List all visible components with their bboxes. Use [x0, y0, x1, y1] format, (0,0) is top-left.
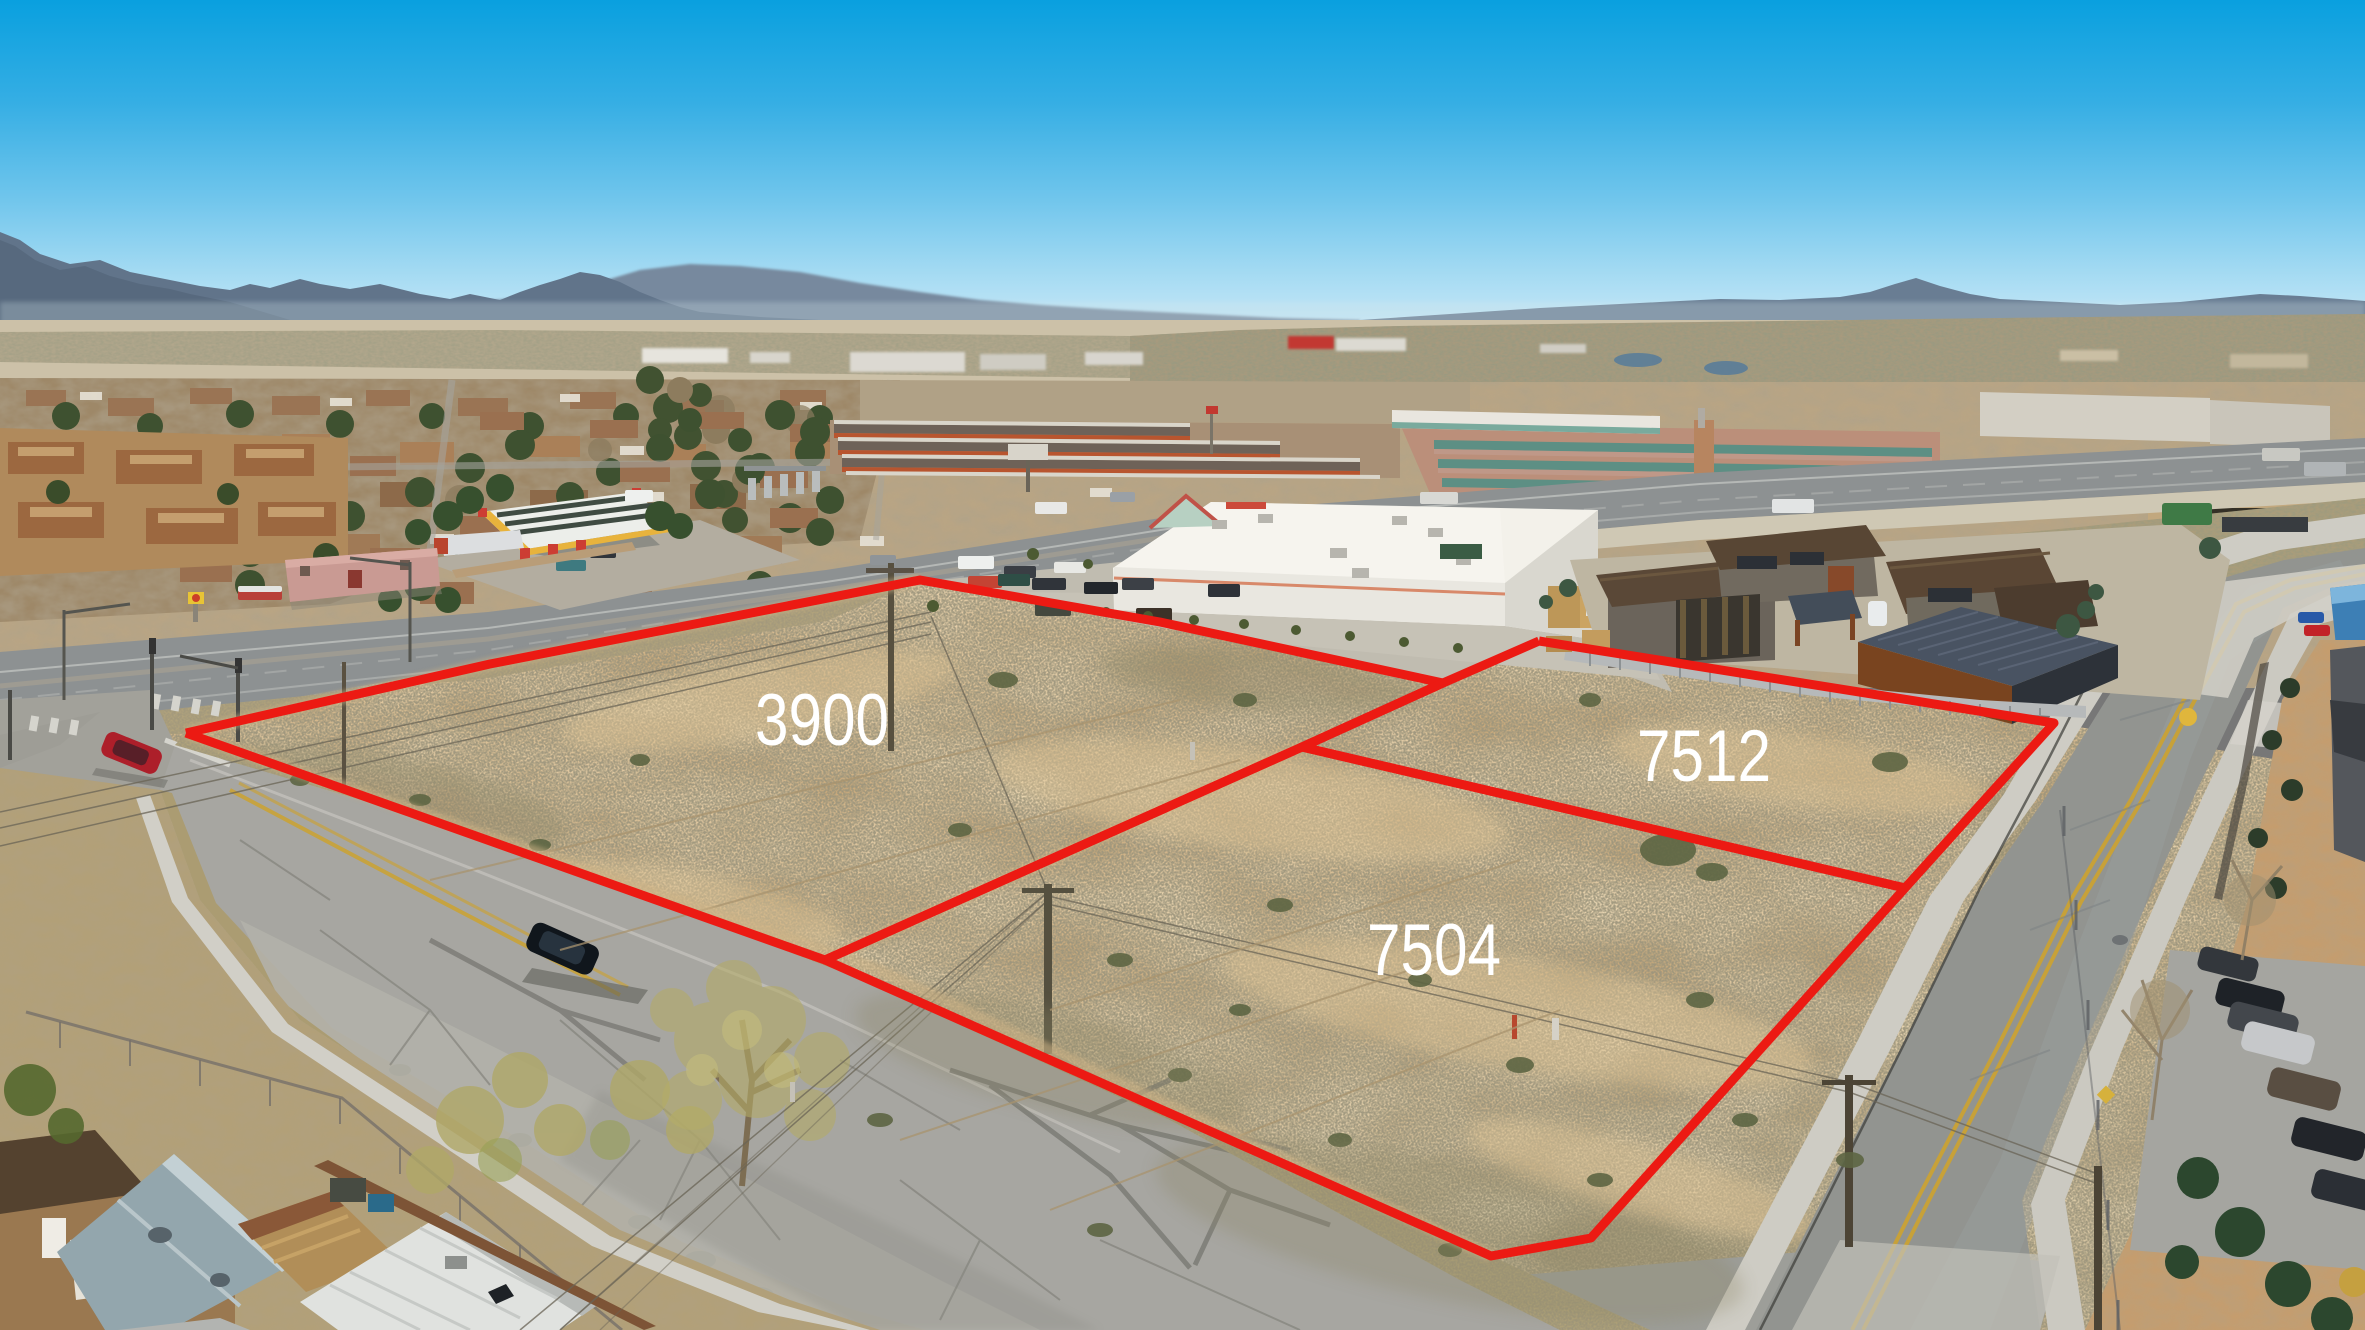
svg-text:7512: 7512: [1637, 716, 1771, 797]
svg-text:3900: 3900: [755, 680, 889, 761]
svg-text:7504: 7504: [1367, 910, 1501, 991]
